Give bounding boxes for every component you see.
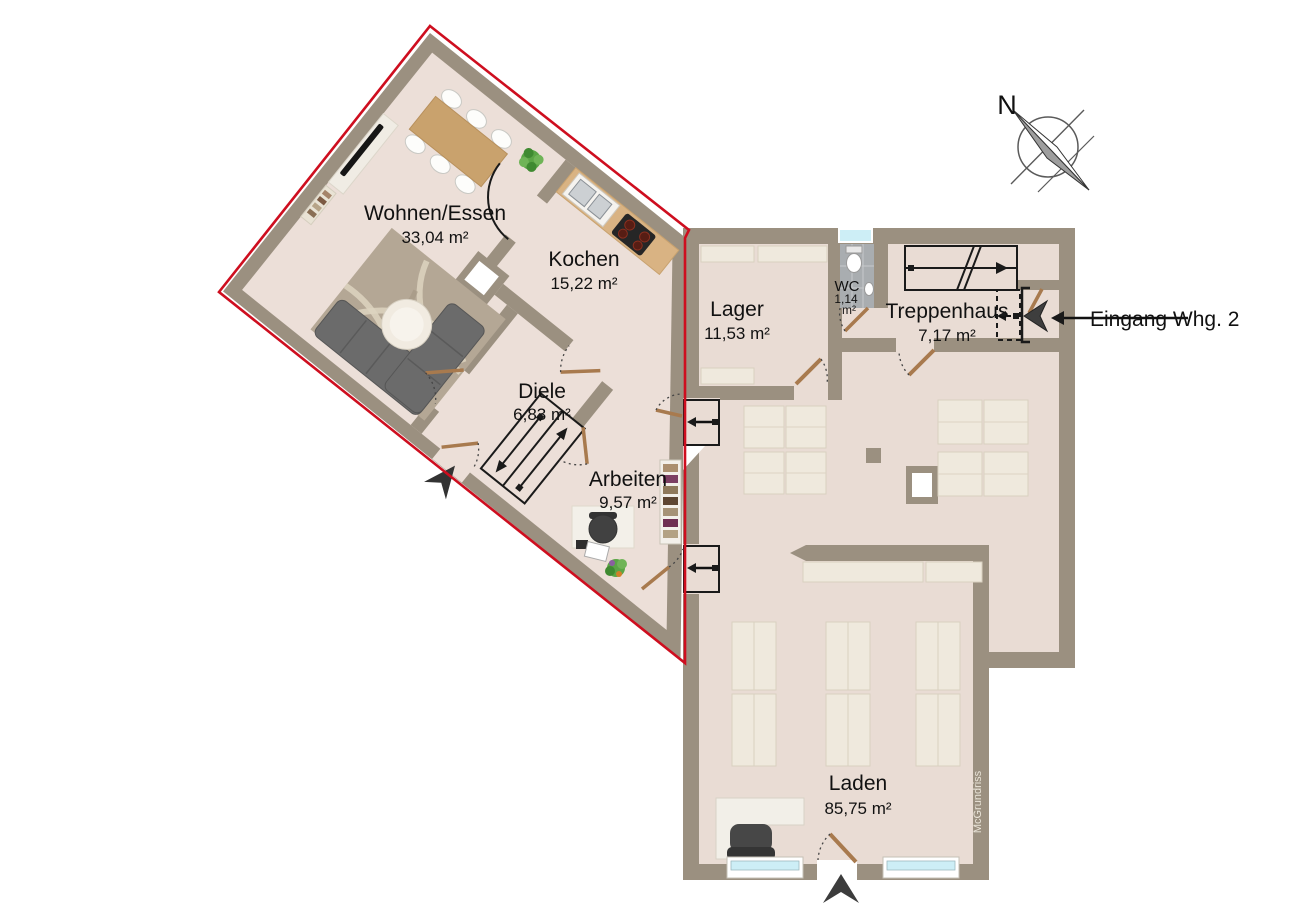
wc-window	[839, 229, 872, 242]
label-laden-name: Laden	[829, 772, 887, 795]
compass-north-label: N	[997, 90, 1017, 120]
floorplan-canvas: N Eingang Whg. 2 Wohnen/Essen 33,04 m² K…	[0, 0, 1300, 919]
column	[866, 448, 881, 463]
label-treppenhaus-name: Treppenhaus	[886, 300, 1009, 323]
entrance-label: Eingang Whg. 2	[1090, 308, 1239, 331]
label-lager-area: 11,53 m²	[704, 324, 770, 343]
toilet-tank	[846, 246, 862, 253]
sink-icon	[865, 283, 874, 296]
label-wohnen-name: Wohnen/Essen	[364, 202, 506, 225]
label-wc-unit: m²	[842, 303, 856, 317]
office-chair-icon	[589, 515, 617, 543]
entrance-annotation: Eingang Whg. 2	[1051, 308, 1239, 331]
floorplan-svg: N Eingang Whg. 2 Wohnen/Essen 33,04 m² K…	[0, 0, 1300, 919]
label-laden-area: 85,75 m²	[824, 799, 891, 818]
label-treppenhaus-area: 7,17 m²	[918, 326, 976, 345]
toilet-icon	[847, 254, 862, 273]
label-arbeiten-area: 9,57 m²	[599, 493, 657, 512]
label-kochen-name: Kochen	[548, 248, 619, 271]
label-diele-area: 6,83 m²	[513, 405, 571, 424]
compass-rose-icon: N	[997, 90, 1094, 192]
label-lager-name: Lager	[710, 298, 764, 321]
label-arbeiten-name: Arbeiten	[589, 468, 667, 491]
watermark: McGrundriss	[972, 770, 984, 833]
label-diele-name: Diele	[518, 380, 566, 403]
label-wohnen-area: 33,04 m²	[401, 228, 468, 247]
label-kochen-area: 15,22 m²	[550, 274, 617, 293]
laden-shelves	[732, 622, 960, 766]
